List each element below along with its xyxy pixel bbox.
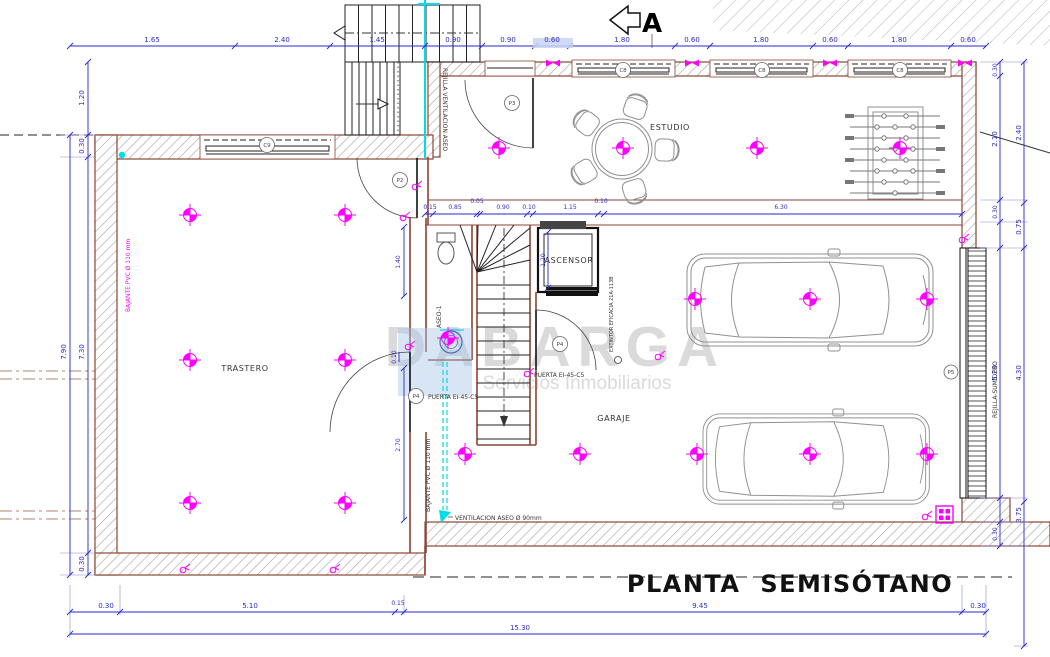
- dim-ro-0: 2.40: [1015, 125, 1023, 141]
- garage-grille-door: [960, 248, 986, 498]
- dim-int-5: 1.15: [563, 204, 577, 211]
- tag-p4-trastero: P4: [413, 394, 420, 400]
- dim-int-4: 0.10: [522, 204, 536, 211]
- floor-plan-canvas: DABARGA Servicios Inmobiliarios: [0, 0, 1050, 657]
- trastero-west-wall: [95, 135, 117, 575]
- dim-ro-3: 3.75: [1015, 507, 1023, 523]
- floor-drain: [936, 506, 953, 523]
- dim-top-8: 1.80: [753, 36, 769, 44]
- dim-top-2: 1.45: [369, 36, 385, 44]
- elevator-door: [546, 287, 598, 291]
- annot-extintor: EXTINTOR EFICACIA 21A-113B: [609, 276, 615, 352]
- room-label-trastero: TRASTERO: [220, 364, 268, 373]
- dim-bot-0: 0.30: [98, 602, 114, 610]
- trastero-south-wall: [95, 553, 425, 575]
- dim-top-0: 1.65: [144, 36, 160, 44]
- dim-ro-2: 4.30: [1015, 365, 1023, 381]
- room-label-ascensor: ASCENSOR: [545, 256, 594, 265]
- tag-p5: P5: [948, 370, 955, 376]
- dim-left-3: 0.30: [78, 556, 86, 572]
- dim-ro-1: 0.75: [1015, 219, 1023, 235]
- dim-ri-4: 0.30: [992, 527, 999, 541]
- foosball-table: [845, 107, 945, 199]
- tag-p3: P3: [509, 101, 516, 107]
- annot-bajante-left: BAJANTE PVC Ø 110 mm: [125, 239, 132, 312]
- garage-south-wall: [425, 522, 1050, 546]
- annot-puerta-trastero: PUERTA EI-45-C5: [428, 394, 478, 401]
- drawing-title: PLANTA SEMISÓTANO: [627, 568, 953, 598]
- tag-c9: C9: [263, 143, 271, 149]
- dim-top-7: 0.60: [684, 36, 700, 44]
- annot-rejilla-ventilacion: REJILLA VENTILACION ASEO: [441, 68, 448, 151]
- tag-p4-garaje: P4: [557, 342, 564, 348]
- dim-int-3: 0.90: [496, 204, 510, 211]
- tag-c8-2: C8: [758, 68, 766, 74]
- entry-threshold: [485, 61, 535, 76]
- tag-c8-3: C8: [896, 68, 904, 74]
- dim-top-9: 0.60: [822, 36, 838, 44]
- labels: ESTUDIO TRASTERO GARAJE ASCENSOR ASEO-1 …: [125, 6, 999, 598]
- door-p2: [357, 158, 417, 218]
- dim-left-0: 1.20: [78, 90, 86, 106]
- vent-arrow: [439, 510, 451, 523]
- site-context: [0, 0, 1050, 577]
- dim-ri-1: 2.10: [991, 131, 999, 147]
- dim-int-6: 0.10: [594, 198, 608, 205]
- dim-bot-2: 0.15: [391, 600, 405, 607]
- dim-left-1: 0.30: [78, 138, 86, 154]
- wc-toilet: [437, 233, 455, 264]
- dim-aseo: 1.40: [395, 255, 402, 269]
- dim-int-2: 0.05: [470, 198, 484, 205]
- dim-int-1: 0.85: [448, 204, 462, 211]
- entry-flight: [345, 62, 400, 135]
- tag-p2: P2: [397, 178, 404, 184]
- room-label-aseo: ASEO-1: [436, 305, 443, 328]
- property-lines: [0, 371, 95, 519]
- pvc-downpipe-marker: [119, 152, 125, 158]
- dim-bot-total: 15.30: [510, 624, 530, 632]
- tag-c8-1: C8: [619, 68, 627, 74]
- dim-bot-1: 5.10: [242, 602, 258, 610]
- dim-top-1: 2.40: [274, 36, 290, 44]
- dim-top-11: 0.60: [960, 36, 976, 44]
- annot-puerta-garaje: PUERTA EI-45-C5: [534, 372, 584, 379]
- annot-ventilacion-aseo: VENTILACION ASEO Ø 90mm: [455, 515, 542, 522]
- dim-int-0: 0.15: [423, 204, 437, 211]
- dim-top-4: 0.90: [500, 36, 516, 44]
- dim-bot-4: 0.30: [970, 602, 986, 610]
- dim-top-3: 0.90: [445, 36, 461, 44]
- dim-top-6: 1.80: [614, 36, 630, 44]
- exterior-stair: [334, 5, 480, 62]
- east-wall-lower: [962, 498, 1010, 524]
- dim-ri-2: 0.30: [992, 205, 999, 219]
- dim-door-offset: 0.10: [391, 350, 398, 364]
- east-wall-upper: [962, 62, 976, 248]
- dim-top-5: 0.60: [544, 36, 560, 44]
- dim-left-total: 7.90: [60, 344, 68, 360]
- room-label-garaje: GARAJE: [597, 414, 630, 423]
- dim-ri-0: 0.30: [992, 63, 999, 77]
- elevator-machine: [540, 221, 586, 229]
- dim-top-10: 1.80: [891, 36, 907, 44]
- dim-left-2: 7.30: [78, 344, 86, 360]
- dim-int-7: 6.30: [774, 204, 788, 211]
- annot-bajante-bottom: BAJANTE PVC Ø 110 mm: [425, 439, 432, 512]
- floor-plan-page: DABARGA Servicios Inmobiliarios: [0, 0, 1050, 657]
- dim-bot-3: 9.45: [692, 602, 708, 610]
- room-label-estudio: ESTUDIO: [650, 123, 690, 132]
- car-2: [703, 409, 929, 509]
- annot-rejilla-sumidero: REJILLA-SUMIDERO: [992, 361, 999, 418]
- dim-garage-west: 2.70: [395, 438, 402, 452]
